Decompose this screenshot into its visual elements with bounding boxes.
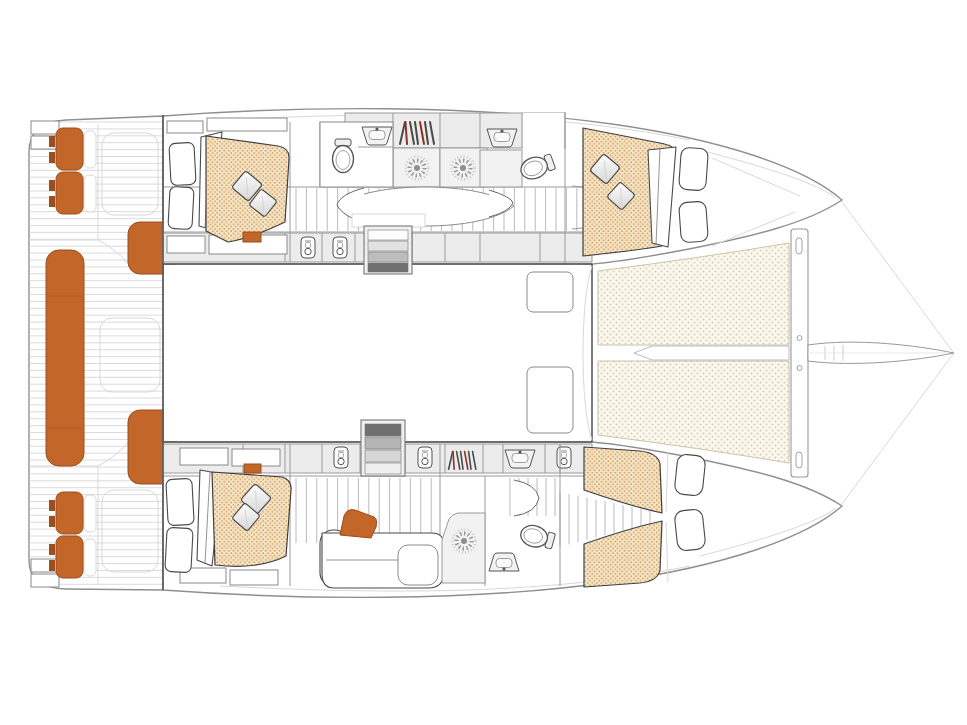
bridle-line xyxy=(842,354,953,504)
berth-pillow xyxy=(169,142,196,185)
seat-cushion xyxy=(679,201,709,243)
sofa-seat xyxy=(398,545,438,585)
stern-chair xyxy=(49,492,96,534)
stern-chair xyxy=(49,128,96,170)
floor-plan-svg xyxy=(0,0,967,725)
berth-pillow xyxy=(166,478,194,525)
seat-cushion xyxy=(679,147,709,191)
port-aft-cabin xyxy=(168,132,289,242)
toilet-icon xyxy=(333,139,354,173)
bridle-line xyxy=(842,202,953,352)
port-aft-bathroom xyxy=(320,122,393,187)
starboard-aft-cabin xyxy=(165,464,291,573)
sink-icon xyxy=(362,127,392,145)
sink-icon xyxy=(505,450,535,468)
berth-accent-cushion xyxy=(244,464,261,473)
berth-pillow xyxy=(168,186,194,229)
locker-fitting-icon xyxy=(334,447,348,468)
locker-fitting-icon xyxy=(301,237,315,258)
sink-icon xyxy=(487,129,517,147)
stern-chair xyxy=(49,172,96,214)
cockpit-bench xyxy=(46,250,84,466)
port-hull xyxy=(163,109,842,264)
locker-fitting-icon xyxy=(557,447,571,468)
locker-fitting-icon xyxy=(333,237,347,258)
shelf xyxy=(167,121,203,133)
starboard-hull xyxy=(163,442,842,597)
forward-hatch xyxy=(527,272,573,312)
catamaran-floor-plan-page xyxy=(0,0,967,725)
stern-step xyxy=(31,121,59,134)
shelf xyxy=(230,570,278,585)
berth-pillow xyxy=(674,454,706,497)
starboard-shower xyxy=(442,513,485,583)
berth-accent-cushion xyxy=(243,232,261,242)
stern-chair xyxy=(49,536,96,578)
bowsprit xyxy=(808,342,954,363)
locker-fitting-icon xyxy=(418,447,432,468)
berth-pillow xyxy=(674,509,706,552)
forward-hatch xyxy=(527,367,573,433)
center-walkway xyxy=(634,346,789,360)
sink-icon xyxy=(489,553,519,571)
shelf xyxy=(180,448,228,465)
starboard-entry-stairs xyxy=(361,420,405,476)
berth-pillow xyxy=(165,527,193,572)
stern-cockpit xyxy=(29,116,175,590)
shelf xyxy=(232,449,280,466)
stern-step xyxy=(31,574,59,587)
shelf xyxy=(167,236,205,253)
shelf xyxy=(207,118,287,131)
cross-beam xyxy=(791,229,808,477)
